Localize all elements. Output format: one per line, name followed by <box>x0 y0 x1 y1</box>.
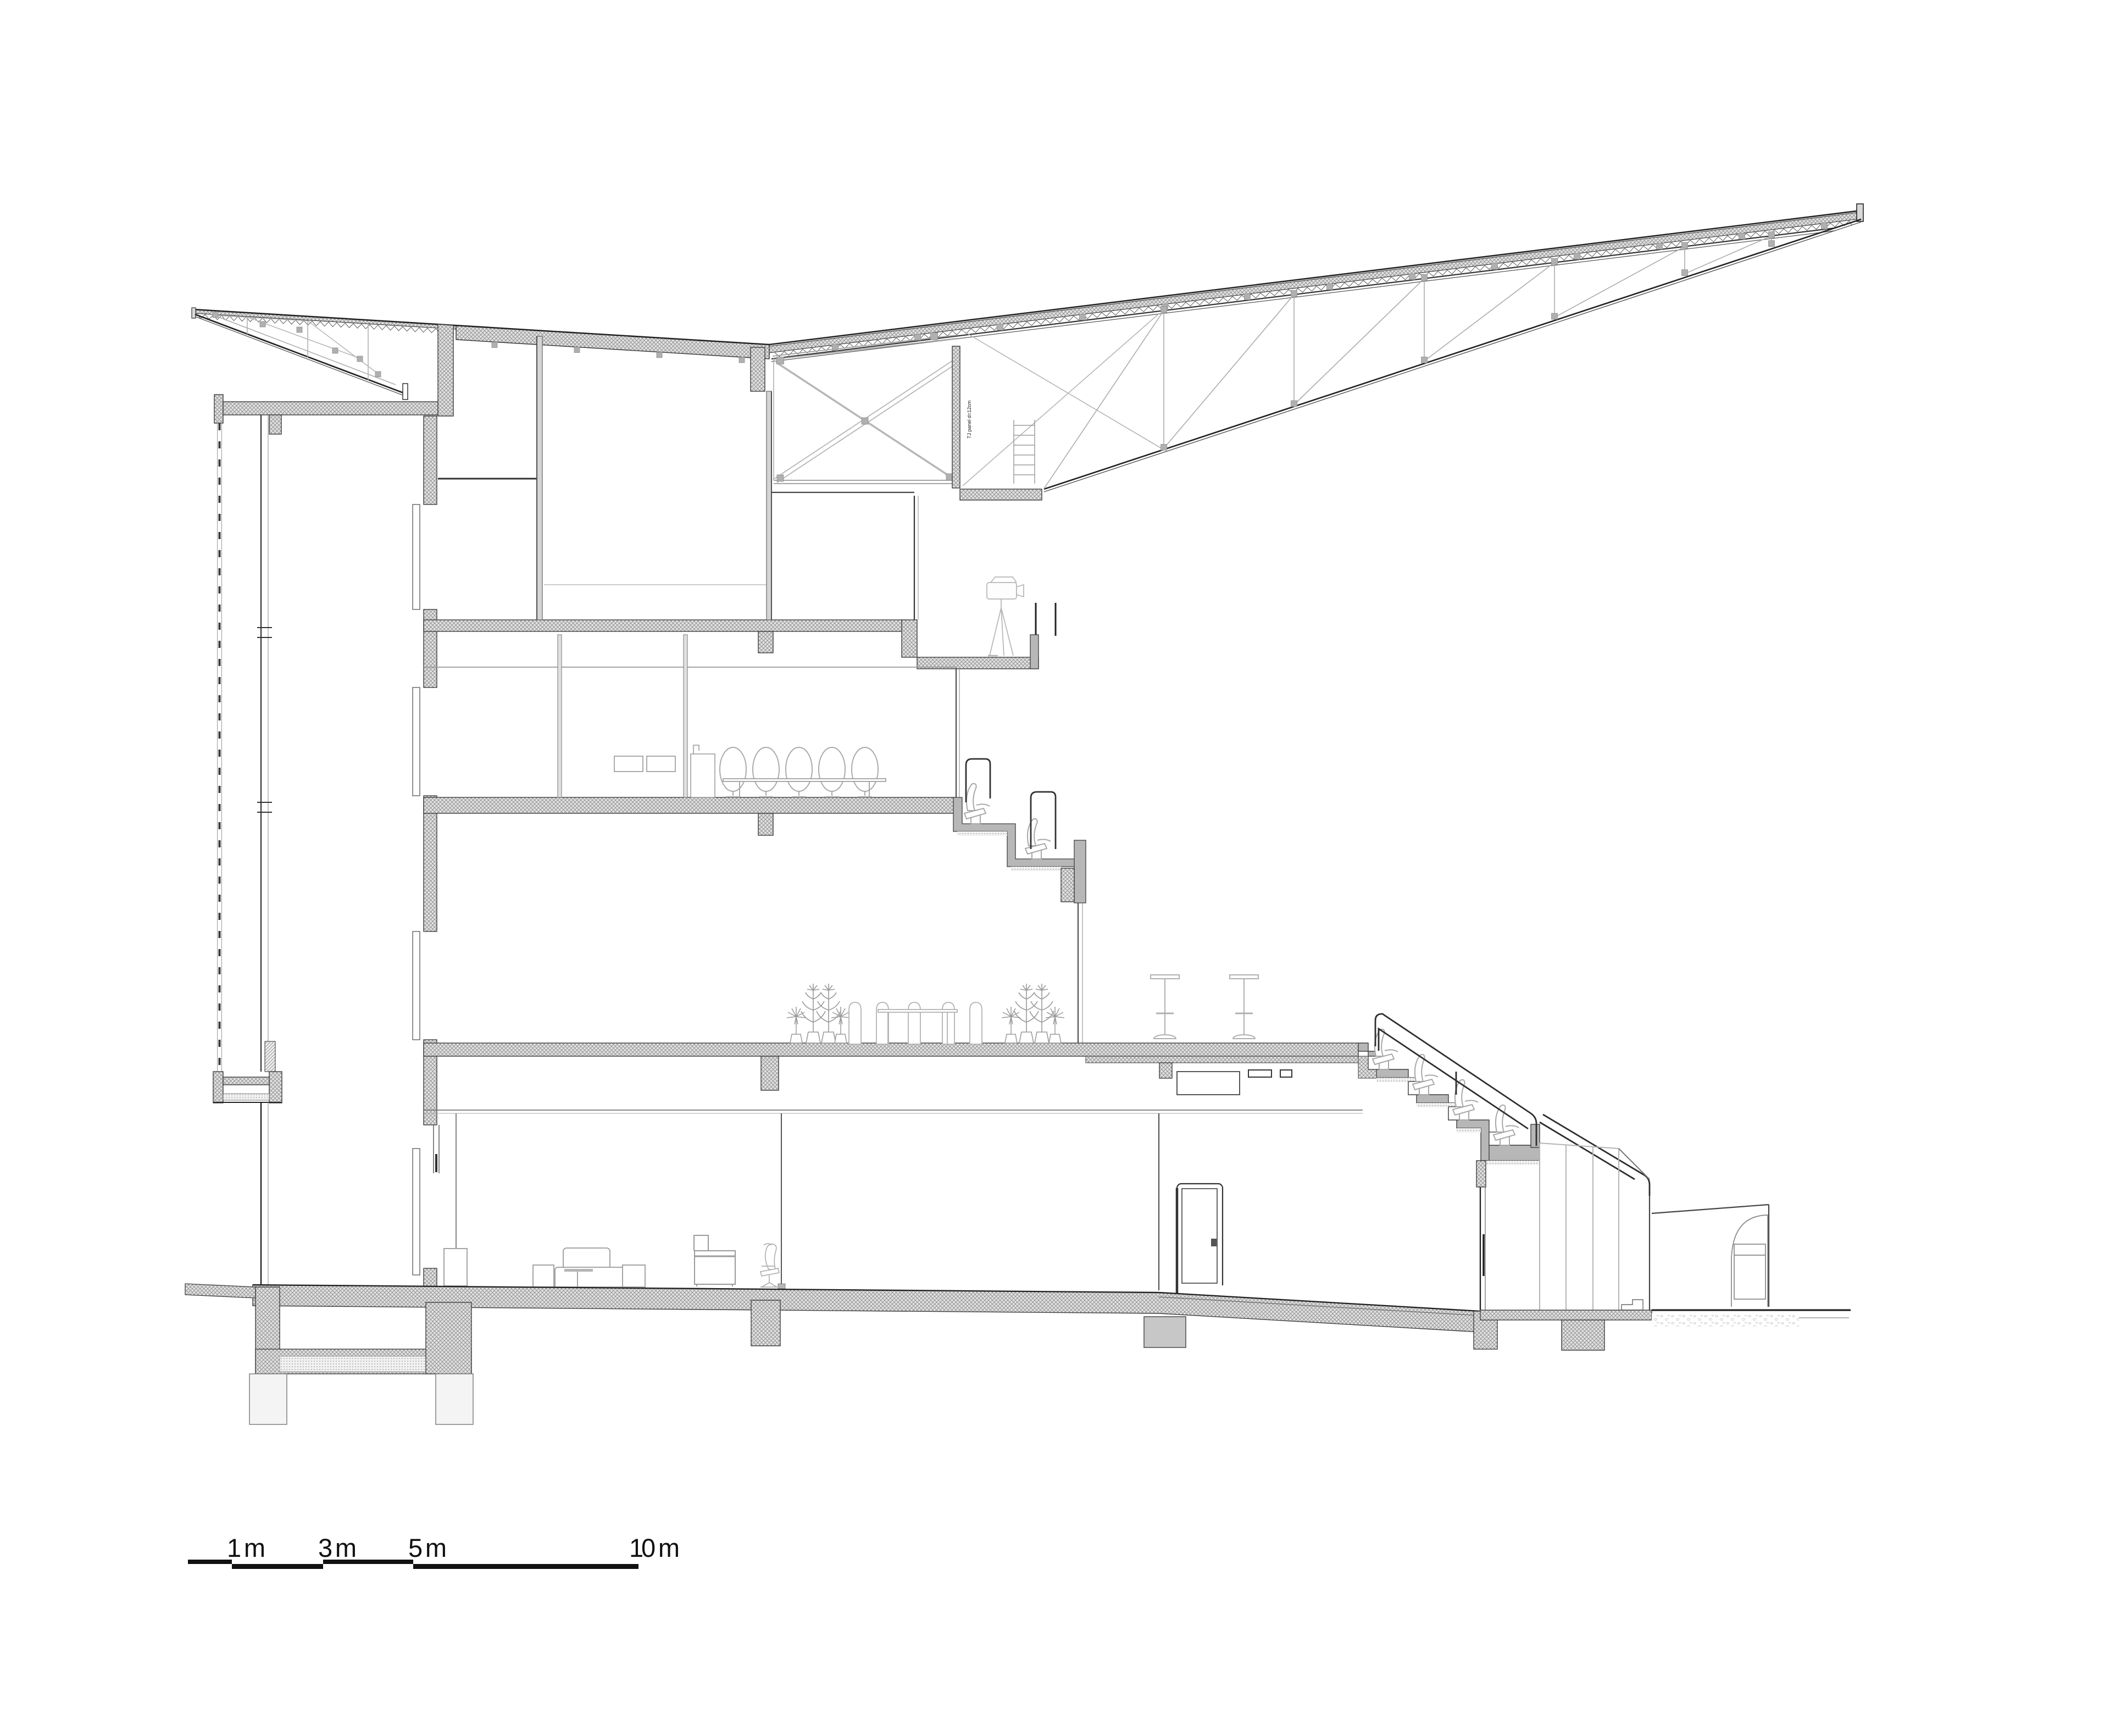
svg-text:3 m: 3 m <box>318 1533 357 1562</box>
svg-text:1 m: 1 m <box>227 1533 265 1562</box>
svg-text:TJ panel d=12cm: TJ panel d=12cm <box>967 401 972 439</box>
svg-text:5 m: 5 m <box>408 1533 447 1562</box>
svg-text:10 m: 10 m <box>629 1533 680 1562</box>
